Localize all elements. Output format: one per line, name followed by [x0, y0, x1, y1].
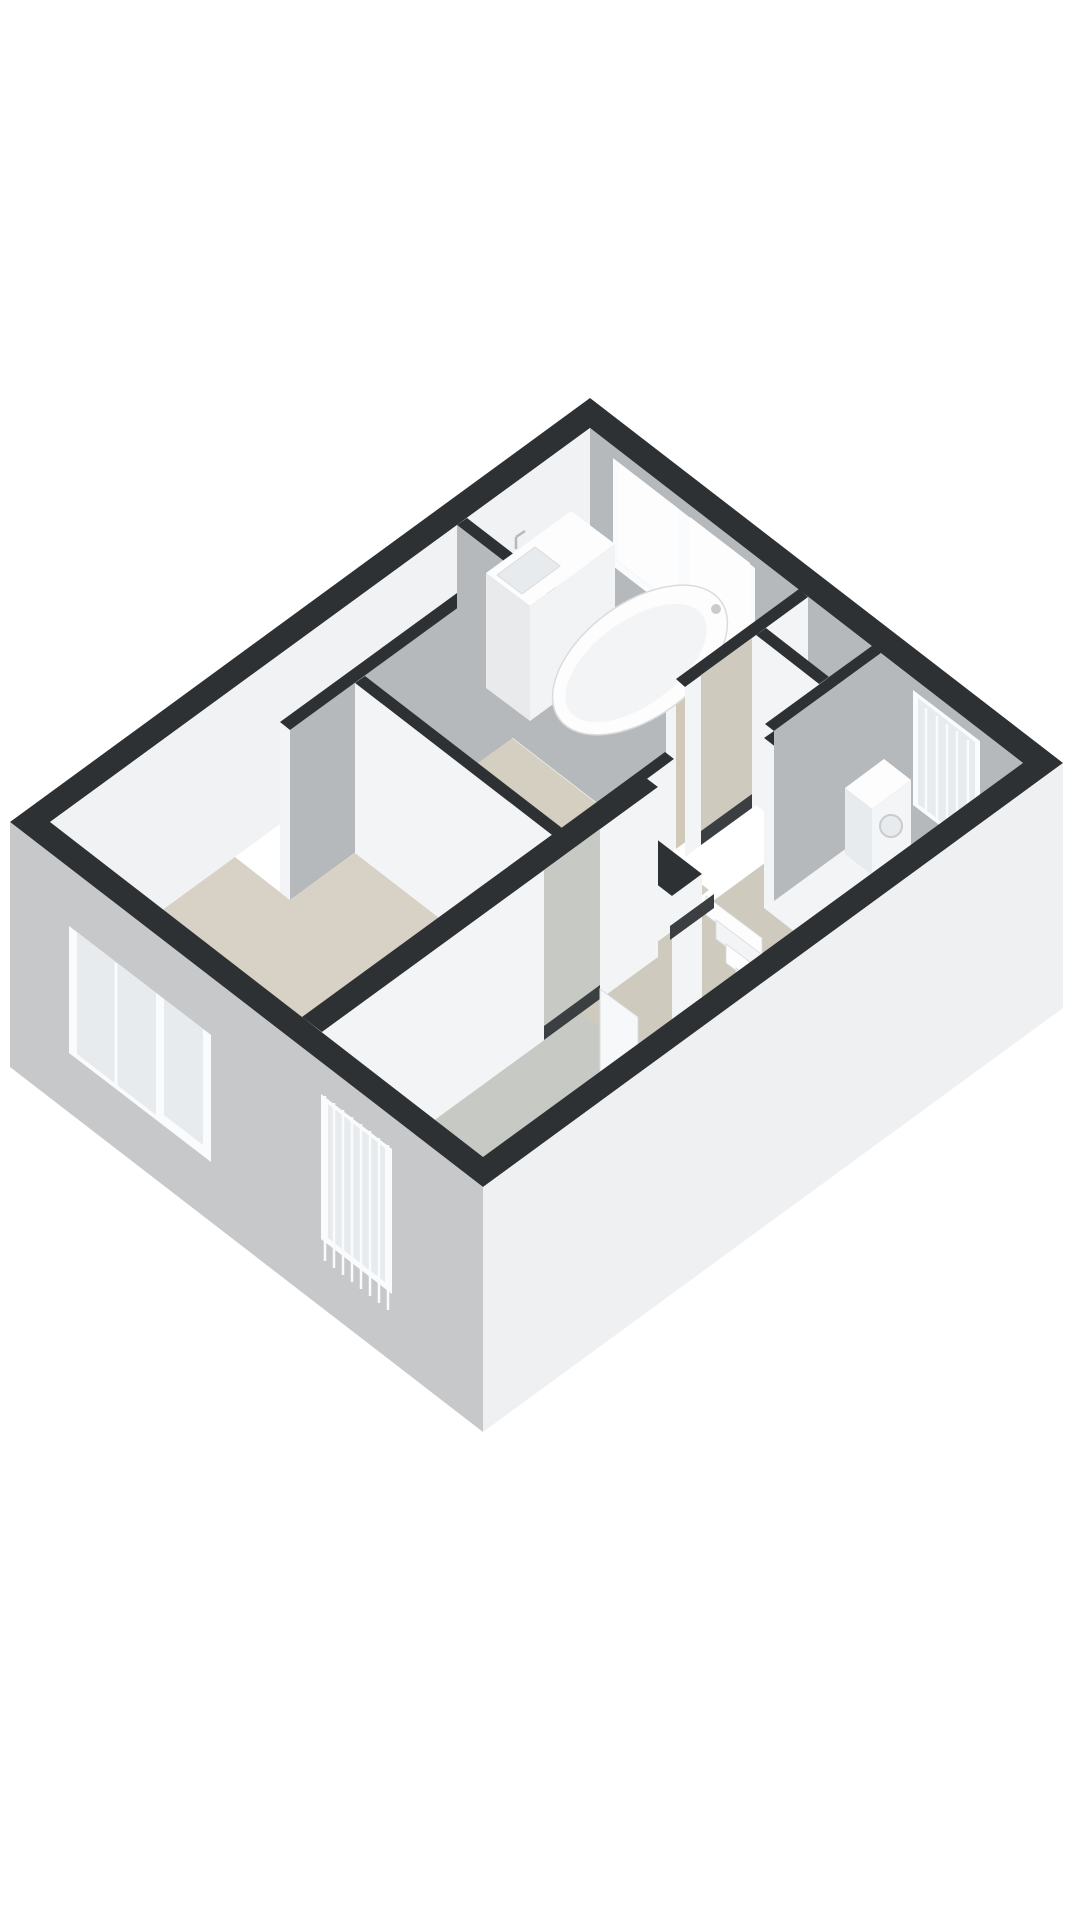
- bathtub-faucet: [711, 604, 721, 614]
- washing-machine-door: [880, 815, 902, 837]
- closet-wall-endcap: [280, 722, 290, 900]
- floorplan-svg: [0, 0, 1080, 1920]
- floorplan-page: [0, 0, 1080, 1920]
